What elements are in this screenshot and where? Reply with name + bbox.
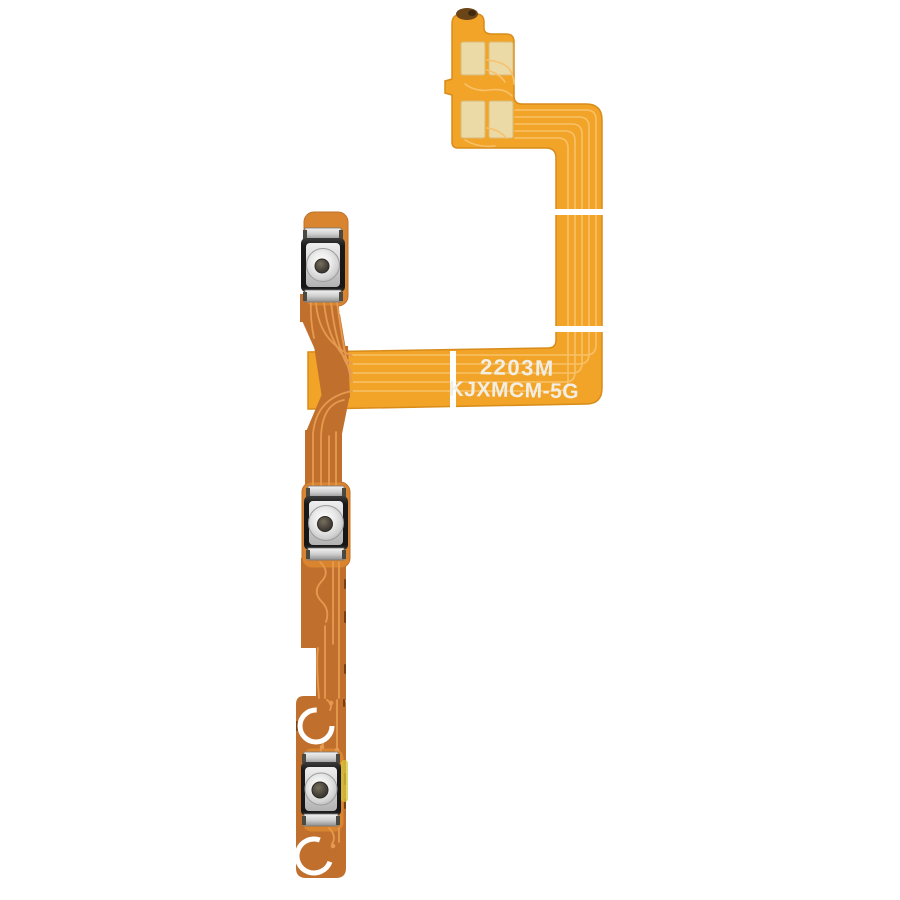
switch-tab-end <box>342 550 346 559</box>
switch-tab-end <box>339 230 343 239</box>
model-marking: 2203M <box>480 354 555 381</box>
tactile-switch-3 <box>301 752 341 826</box>
switch-tab-end <box>336 816 340 825</box>
connector-pad <box>461 101 485 138</box>
connector-pad <box>461 42 485 75</box>
main-flex-ribbon <box>308 8 602 409</box>
stiffener-divider-lower <box>555 326 603 332</box>
switch-tab-end <box>302 754 306 763</box>
stiffener-divider-upper <box>555 209 603 215</box>
switch-tab-end <box>306 488 310 497</box>
switch-tab-end <box>302 816 306 825</box>
product-photo-canvas: 2203M KJXMCM-5G <box>0 0 900 900</box>
switch-tab-end <box>303 292 307 301</box>
switch-solder-tab-bottom <box>305 290 341 302</box>
switch-actuator-dot <box>315 259 329 273</box>
glue-smudge <box>341 760 348 802</box>
strip-narrow-segment <box>316 645 346 700</box>
part-number-marking: KJXMCM-5G <box>448 378 579 404</box>
switch-tab-end <box>306 550 310 559</box>
flex-cable-photo: 2203M KJXMCM-5G <box>0 0 900 900</box>
kapton-tape-dark-spot <box>468 10 476 16</box>
switch-solder-tab-bottom <box>304 814 338 826</box>
tactile-switch-2 <box>304 486 348 560</box>
switch-actuator-dot <box>318 517 333 532</box>
switch-tab-end <box>342 488 346 497</box>
switch-tab-end <box>336 754 340 763</box>
switch-solder-tab-bottom <box>308 548 344 560</box>
switch-tab-end <box>339 292 343 301</box>
tactile-switch-1 <box>301 228 345 302</box>
switch-tab-end <box>303 230 307 239</box>
switch-actuator-dot <box>312 782 328 798</box>
